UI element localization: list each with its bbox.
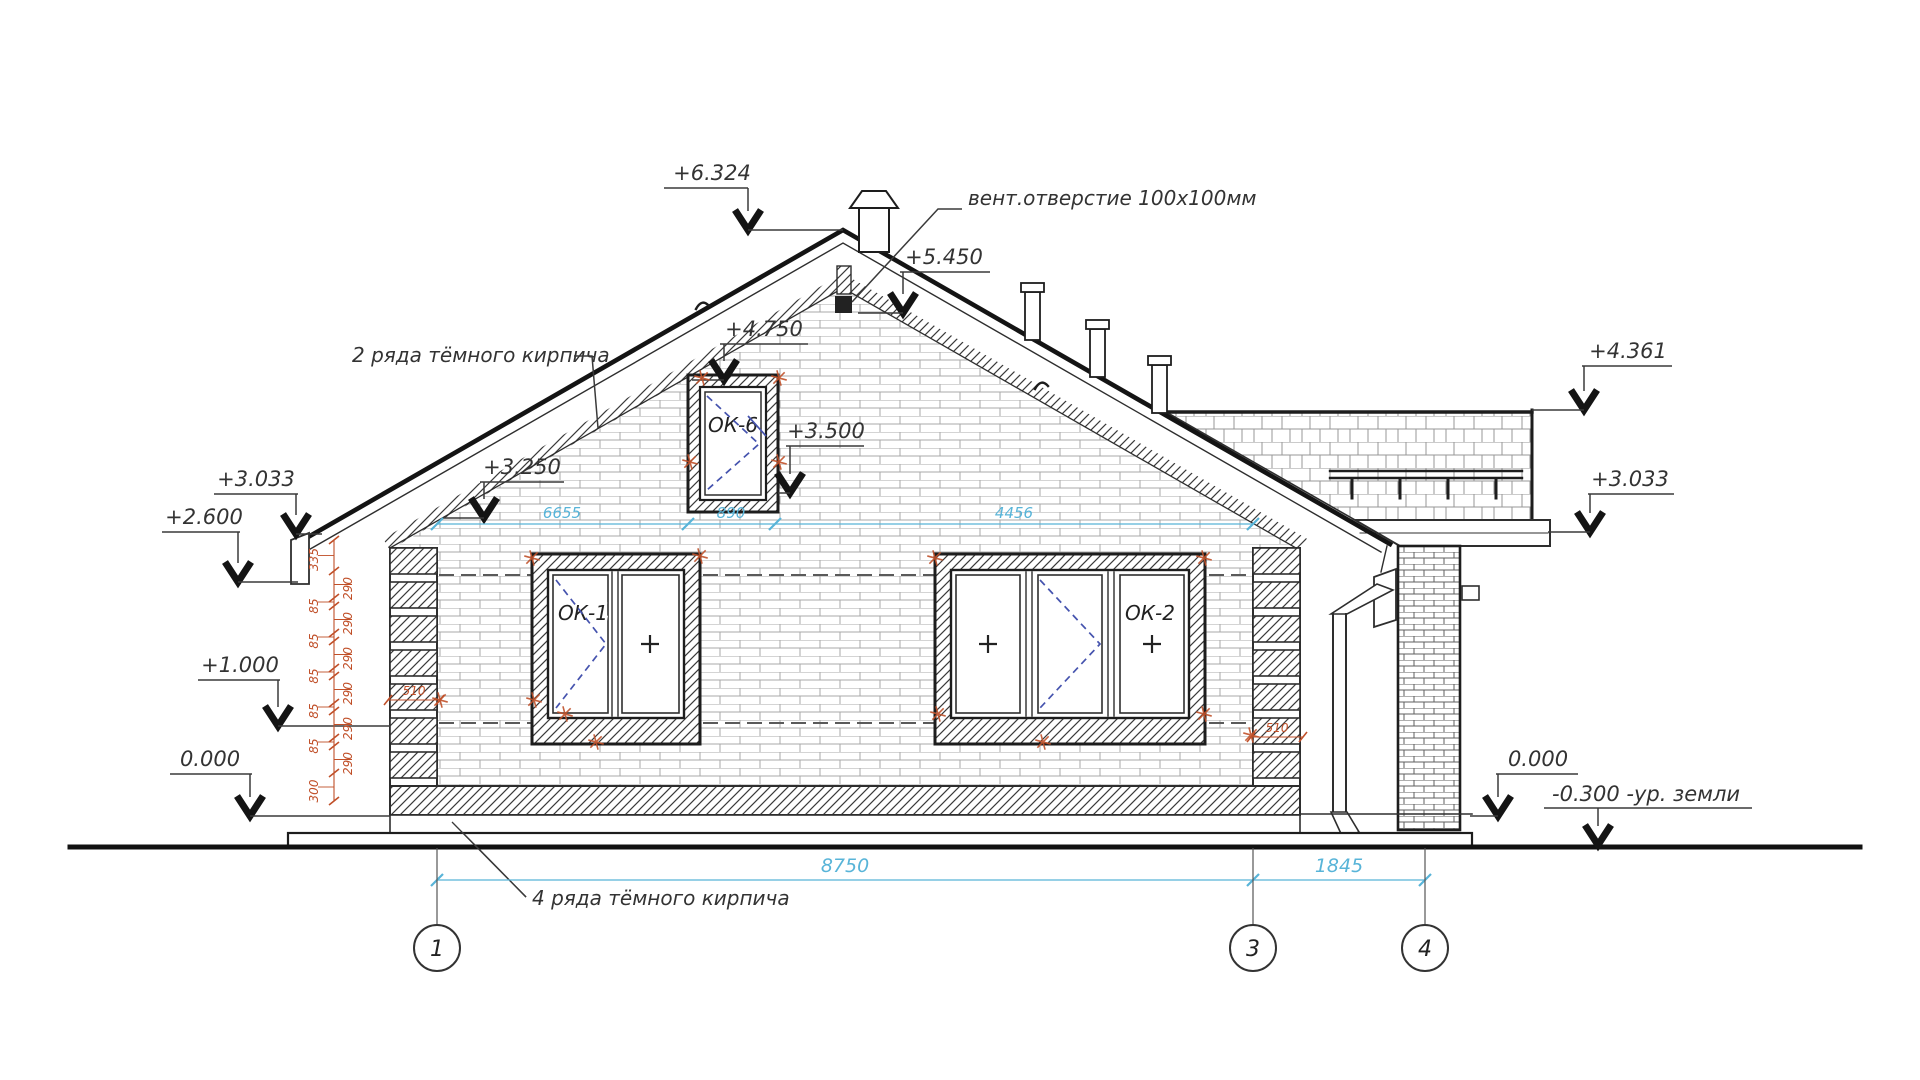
elevation-arrow-icon (1571, 390, 1597, 410)
elevation-value: +6.324 (673, 161, 751, 185)
elevation-value: 0.000 (180, 747, 240, 771)
elevation-mark-m6324: +6.324 (664, 161, 843, 230)
plinth-dark-brick-band (390, 786, 1300, 815)
gable-vent-duct (837, 266, 851, 294)
left-quoin-column (390, 548, 437, 786)
dim-value-top: 6655 (543, 504, 581, 522)
elevation-arrow-icon (1577, 512, 1603, 532)
elevation-arrow-icon (237, 796, 263, 816)
chain-value: 335 (307, 548, 321, 571)
chain-value: 85 (307, 633, 321, 648)
foundation-upper-band (390, 815, 1300, 833)
vent-opening (835, 296, 852, 313)
elevation-arrow-icon (735, 210, 761, 230)
elevation-value: +1.000 (201, 653, 279, 677)
chain-value: 300 (307, 779, 321, 802)
chain-value: 290 (341, 752, 355, 775)
chain-value: 85 (307, 668, 321, 683)
elevation-mark-m2600: +2.600 (162, 505, 298, 582)
chain-value: 85 (307, 738, 321, 753)
elevation-mark-m4361: +4.361 (1532, 339, 1672, 410)
chain-value: 85 (307, 598, 321, 613)
elevation-mark-m1000: +1.000 (198, 653, 390, 726)
quoin-width-value: 510 (403, 684, 426, 698)
brick-course-dim-chain: 3352908529085290852908529085290300 (307, 536, 355, 805)
chain-value: 290 (341, 577, 355, 600)
quoin-width-value: 510 (1266, 721, 1289, 735)
chain-value: 85 (307, 703, 321, 718)
dark-brick-4-label: 4 ряда тёмного кирпича (532, 886, 790, 910)
chain-value: 290 (341, 647, 355, 670)
axis-bubble-1: 1 (414, 925, 460, 971)
elevation-mark-m0000L: 0.000 (170, 747, 390, 816)
elevation-mark-m3033R: +3.033 (1548, 467, 1674, 532)
dim-value-bottom: 1845 (1315, 855, 1363, 877)
annex-brick-pier (1398, 546, 1460, 830)
axis-bubble-3: 3 (1230, 925, 1276, 971)
axis-number: 4 (1418, 937, 1432, 962)
elevation-value: +3.033 (217, 467, 295, 491)
house-structure (70, 191, 1860, 847)
facade-drawing-page: +6.324+5.450+4.750+3.500+3.250+3.033+2.6… (0, 0, 1920, 1080)
elevation-value: +4.361 (1589, 339, 1667, 363)
dark-brick-4-leader (474, 844, 526, 897)
chain-value: 290 (341, 612, 355, 635)
axis-bubble-4: 4 (1402, 925, 1448, 971)
dim-value-top: 4456 (995, 504, 1033, 522)
dim-value-top: 890 (717, 504, 746, 522)
chain-value: 290 (341, 682, 355, 705)
elevation-value: +5.450 (905, 245, 983, 269)
annotation-vent: вент.отверстие 100х100мм (852, 186, 1257, 302)
vent-label: вент.отверстие 100х100мм (968, 186, 1257, 210)
chimney-small-2 (1086, 320, 1109, 377)
window-ok2 (935, 554, 1205, 744)
elevation-arrow-icon (265, 706, 291, 726)
window-label-ok2: ОК-2 (1125, 601, 1175, 625)
elevation-value: +2.600 (165, 505, 243, 529)
elevation-arrow-icon (283, 514, 309, 534)
elevation-value: +4.750 (725, 317, 803, 341)
ground-level-label: -0.300 -ур. земли (1552, 782, 1740, 806)
window-label-ok6: ОК-6 (708, 413, 758, 437)
elevation-value: +3.250 (483, 455, 561, 479)
facade-elevation-drawing: +6.324+5.450+4.750+3.500+3.250+3.033+2.6… (0, 0, 1920, 1080)
elevation-arrow-icon (225, 562, 251, 582)
elevation-arrow-icon (1485, 796, 1511, 816)
chain-value: 290 (341, 717, 355, 740)
elevation-value: +3.500 (787, 419, 865, 443)
elevation-value: +3.033 (1591, 467, 1669, 491)
axis-number: 1 (430, 937, 444, 962)
elevation-value: 0.000 (1508, 747, 1568, 771)
dim-value-bottom: 8750 (821, 855, 869, 877)
elevation-mark-ground: -0.300 -ур. земли (1544, 782, 1752, 845)
window-ok6 (688, 375, 778, 512)
dark-brick-2-label: 2 ряда тёмного кирпича (352, 343, 610, 367)
elevation-arrow-icon (1585, 825, 1611, 845)
window-label-ok1: ОК-1 (558, 601, 608, 625)
chimney-small-3 (1148, 356, 1171, 413)
right-quoin-column (1253, 548, 1300, 786)
chimney-main (850, 191, 898, 252)
pier-side-box (1462, 586, 1479, 600)
chimney-small-1 (1021, 283, 1044, 340)
axis-number: 3 (1246, 937, 1260, 962)
